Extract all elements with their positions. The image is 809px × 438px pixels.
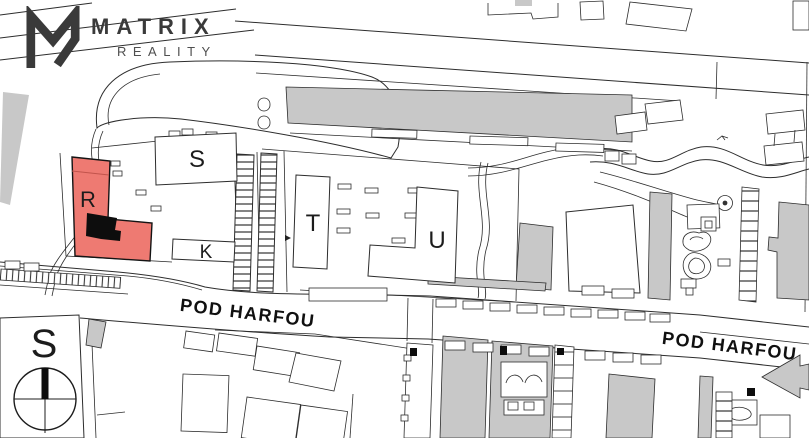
compass-north-label: S [31, 322, 58, 366]
building-u-label: U [428, 227, 445, 254]
building-k-label: K [200, 242, 213, 263]
walkway-strip [552, 345, 574, 438]
site-plan-canvas: MATRIX REALITY [0, 0, 809, 438]
building-t-label: T [306, 210, 321, 237]
crossing-strip [739, 187, 759, 302]
street-label-west: POD HARFOU [179, 295, 316, 331]
building-r-label: R [80, 187, 96, 212]
brand-logo-text: MATRIX REALITY [91, 6, 217, 59]
brand-name: MATRIX [91, 15, 217, 39]
notched-building [768, 202, 809, 300]
brand-tagline: REALITY [91, 44, 217, 59]
brand-logo: MATRIX REALITY [26, 6, 217, 68]
parking-hatch-strip [0, 269, 120, 288]
stair-ramps [233, 153, 277, 292]
long-slab-building [286, 87, 632, 142]
street-label-east: POD HARFOU [661, 328, 798, 364]
compass-needle [42, 368, 49, 399]
left-strip-building [0, 92, 29, 205]
compass: S [0, 315, 84, 438]
playground-area [681, 187, 759, 302]
matrix-m-icon [26, 6, 80, 68]
building-s-label: S [189, 146, 205, 173]
